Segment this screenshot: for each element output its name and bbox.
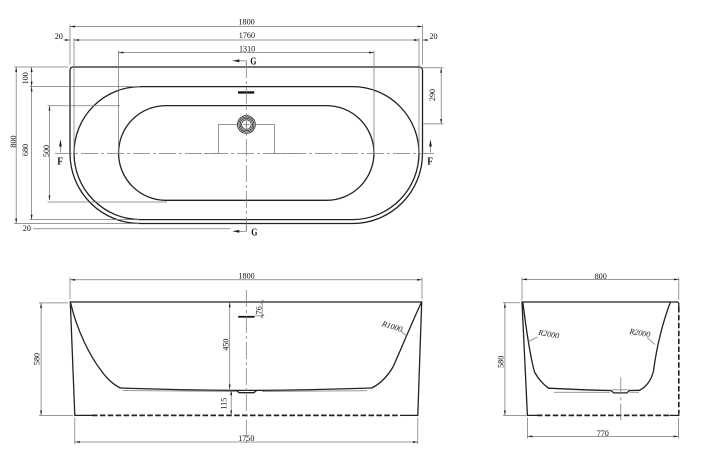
- svg-text:G: G: [251, 226, 258, 238]
- svg-text:450: 450: [222, 339, 231, 351]
- svg-text:F: F: [57, 156, 63, 168]
- svg-text:580: 580: [497, 356, 506, 368]
- svg-text:800: 800: [9, 135, 18, 147]
- svg-text:20: 20: [430, 32, 438, 41]
- svg-text:1310: 1310: [239, 45, 255, 54]
- svg-text:800: 800: [595, 272, 607, 281]
- svg-text:20: 20: [55, 32, 63, 41]
- svg-text:290: 290: [428, 89, 437, 101]
- svg-text:76: 76: [255, 306, 264, 314]
- svg-text:580: 580: [32, 353, 41, 365]
- svg-text:1800: 1800: [239, 18, 255, 27]
- svg-text:770: 770: [597, 429, 609, 438]
- svg-text:1800: 1800: [239, 272, 255, 281]
- svg-text:1760: 1760: [239, 31, 255, 40]
- svg-text:500: 500: [42, 145, 51, 157]
- svg-text:115: 115: [220, 398, 229, 410]
- svg-text:680: 680: [21, 144, 30, 156]
- svg-text:G: G: [250, 56, 257, 68]
- svg-text:100: 100: [21, 72, 30, 84]
- svg-text:F: F: [427, 156, 433, 168]
- svg-text:20: 20: [23, 224, 31, 233]
- svg-text:1750: 1750: [238, 434, 254, 443]
